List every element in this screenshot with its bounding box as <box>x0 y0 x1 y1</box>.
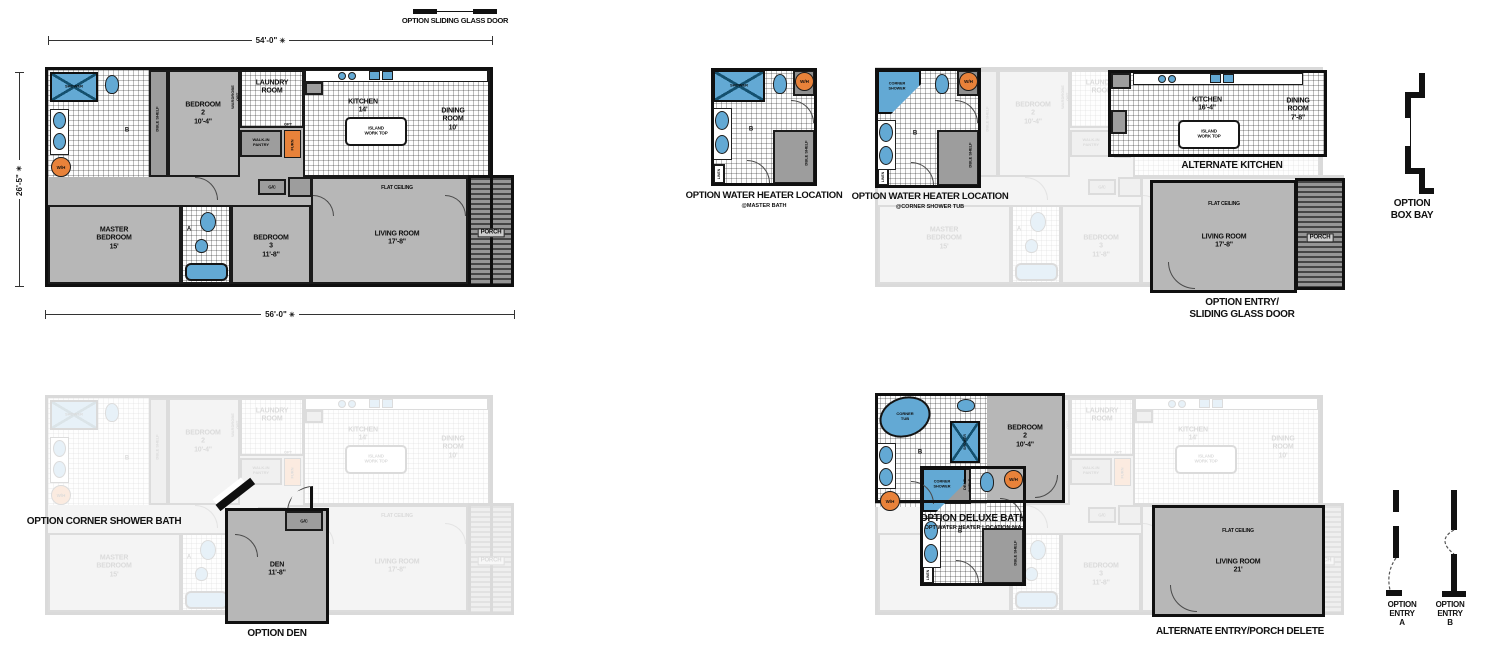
stove-icon <box>382 71 393 80</box>
island-label: ISLAND WORK TOP <box>364 454 387 465</box>
sink-icon <box>879 468 893 486</box>
dble-shelf-label: DBLE SHELF <box>1014 540 1019 565</box>
option-wh-corner-subtitle: @CORNER SHOWER TUB <box>896 204 964 210</box>
porch-label: PORCH <box>478 228 505 237</box>
bathtub-icon <box>185 591 228 609</box>
stove-icon <box>369 399 380 408</box>
hall-closet <box>288 177 312 197</box>
dim-line <box>46 314 261 315</box>
pantry-label: WALK-IN PANTRY <box>1082 466 1099 476</box>
bath-a-toilet-icon <box>195 239 208 253</box>
linen-label: LINEN <box>881 172 885 183</box>
dim-left-value: 26'-5" ✳ <box>15 160 24 200</box>
porch-label: PORCH <box>478 556 505 565</box>
furnace-label: FURN <box>291 467 296 478</box>
alt-dining-label: DINING ROOM 7'-8" <box>1286 97 1309 122</box>
bath-a-label: A <box>187 226 191 233</box>
dim-line <box>289 40 492 41</box>
option-deluxe-bath: CORNER TUB W/H SHOWER B DBLE SHELF BEDRO… <box>875 393 1065 507</box>
sink-icon <box>924 544 938 563</box>
porch-label: PORCH <box>1307 233 1334 242</box>
kitchen-sink-icon <box>1168 75 1176 83</box>
furnace-label: FURN <box>291 139 296 150</box>
wardrobe-opt-label: WARDROBE OPT <box>231 413 241 437</box>
dim-line <box>49 40 252 41</box>
living-label: LIVING ROOM 17'-8" <box>375 231 420 248</box>
option-den-title: OPTION DEN <box>247 628 306 640</box>
bathtub-icon <box>185 263 228 281</box>
stove-icon <box>369 71 380 80</box>
bath-a-toilet-icon <box>1025 567 1038 581</box>
dble-shelf-label: DBLE SHELF <box>986 106 991 131</box>
door-panel <box>413 9 437 14</box>
linen-label: LINEN <box>926 570 930 581</box>
main-floor-plan: PORCH SHOWER <box>45 67 517 290</box>
option-wh-corner-shower: CORNER SHOWER W/H LINEN DBLE SHELF B <box>875 68 981 188</box>
kitchen-sink-icon <box>1158 75 1166 83</box>
gc-label: G/C <box>1098 184 1105 189</box>
kitchen-sink-icon <box>348 72 356 80</box>
option-wh-corner-title: OPTION WATER HEATER LOCATION <box>852 192 1009 203</box>
alternate-kitchen: KITCHEN 16'-4" ISLAND WORK TOP DINING RO… <box>1108 70 1327 157</box>
corner-shower-label: CORNER SHOWER <box>888 81 905 90</box>
flat-ceiling-label: FLAT CEILING <box>381 513 413 519</box>
toilet-icon <box>105 75 119 94</box>
dim-line <box>19 73 20 160</box>
main-plan-wrap: PORCH SHOWER <box>45 67 517 290</box>
corner-shower-label: CORNER SHOWER <box>933 479 950 488</box>
bedroom2-label: BEDROOM 2 10'-4" <box>1015 101 1050 126</box>
kitchen-sink-icon <box>338 72 346 80</box>
wardrobe-opt-label: WARDROBE OPT <box>231 85 241 109</box>
master-label: MASTER BEDROOM 15' <box>96 554 131 579</box>
kitchen-counter <box>1135 398 1318 410</box>
laundry-label: LAUNDRY ROOM <box>1086 408 1119 425</box>
fridge-icon <box>1111 73 1131 89</box>
sliding-glass-door-glyph <box>413 9 497 14</box>
toilet-icon <box>935 74 949 94</box>
water-heater-icon: W/H <box>795 72 814 91</box>
shower-label: SHOWER <box>730 84 748 89</box>
fridge-icon <box>1135 410 1153 423</box>
alt-kitchen-label: KITCHEN 16'-4" <box>1192 97 1222 114</box>
master-label: MASTER BEDROOM 15' <box>96 226 131 251</box>
bedroom3-label: BEDROOM 3 11'-8" <box>253 234 288 259</box>
shower-label: SHOWER <box>963 434 967 450</box>
toilet-icon <box>980 472 994 492</box>
kitchen-counter <box>305 70 488 82</box>
option-sliding-glass-door-caption: OPTION SLIDING GLASS DOOR <box>402 17 508 26</box>
bedroom2-label: BEDROOM 2 10'-4" <box>1007 424 1042 449</box>
island-label: ISLAND WORK TOP <box>1194 454 1217 465</box>
linen-label: LINEN <box>717 169 721 180</box>
sink-icon <box>53 112 66 129</box>
gc-label: G/C <box>300 518 307 523</box>
hall-closet <box>1118 505 1142 525</box>
kitchen-counter <box>305 398 488 410</box>
option-entry-a-title: OPTION ENTRY A <box>1388 600 1417 628</box>
bath-a-sink-icon <box>1030 540 1046 560</box>
sink-icon <box>715 135 729 154</box>
corner-tub-label: CORNER TUB <box>896 412 913 422</box>
furnace-icon: FURN <box>284 130 301 158</box>
door-panel <box>473 9 497 14</box>
option-box-bay-glyph <box>1392 70 1436 196</box>
alternate-entry-title: ALTERNATE ENTRY/PORCH DELETE <box>1156 626 1324 638</box>
fridge-icon <box>305 410 323 423</box>
water-heater-icon: W/H <box>880 491 900 511</box>
dim-star: ✳ <box>280 38 286 45</box>
box-bay-wall-icon <box>1392 70 1436 196</box>
sink-icon <box>879 123 893 142</box>
stove-icon <box>1223 74 1234 83</box>
pantry-label: WALK-IN PANTRY <box>252 466 269 476</box>
bathtub-icon <box>1015 263 1058 281</box>
bath-a-label: A <box>187 554 191 561</box>
hall-closet <box>1118 177 1142 197</box>
dim-bottom-value: 56'-0" ✳ <box>261 310 299 319</box>
furnace-label: FURN <box>1121 467 1126 478</box>
water-heater-icon: W/H <box>959 72 978 91</box>
dim-top-value: 54'-0" ✳ <box>252 36 290 45</box>
kitchen-label: KITCHEN 14' <box>348 99 378 116</box>
sink-icon <box>879 446 893 464</box>
laundry-label: LAUNDRY ROOM <box>256 80 289 97</box>
dim-line <box>19 199 20 286</box>
dim-star: ✳ <box>289 312 295 319</box>
dim-text: 54'-0" <box>256 36 278 45</box>
dble-shelf-label: DBLE SHELF <box>963 474 973 496</box>
bath-a-sink-icon <box>200 540 216 560</box>
kitchen-sink-icon <box>1168 400 1176 408</box>
bedroom3-label: BEDROOM 3 11'-8" <box>1083 234 1118 259</box>
water-heater-icon: W/H <box>51 157 71 177</box>
den-label: DEN 11'-8" <box>268 562 285 579</box>
water-heater-icon: W/H <box>1004 470 1023 489</box>
option-wh-master-subtitle: @MASTER BATH <box>742 203 787 209</box>
option-entry-b-glyph <box>1430 488 1470 600</box>
kitchen-sink-icon <box>348 400 356 408</box>
fridge-icon <box>305 82 323 95</box>
option-deluxe-bath-subtitle: OPT WATER HEATER LOCATION N/A <box>925 525 1022 531</box>
bath-b-label: B <box>125 127 129 134</box>
living-label: LIVING ROOM 21' <box>1216 559 1261 576</box>
flat-ceiling-label: FLAT CEILING <box>1222 528 1254 534</box>
option-corner-shower-bath-title: OPTION CORNER SHOWER BATH <box>27 516 182 528</box>
sink-icon <box>53 133 66 150</box>
master-label: MASTER BEDROOM 15' <box>926 226 961 251</box>
bath-label: B <box>749 126 753 133</box>
flat-ceiling-label: FLAT CEILING <box>381 185 413 191</box>
bath-a-toilet-icon <box>195 567 208 581</box>
option-entry-a-glyph <box>1384 488 1424 600</box>
shower-label: SHOWER <box>65 85 83 90</box>
gc-label: G/C <box>268 184 275 189</box>
floorplan-sheet: PORCH SHOWER <box>0 0 1485 649</box>
option-wh-master-title: OPTION WATER HEATER LOCATION <box>686 191 843 202</box>
opt-label: OPT <box>1114 451 1122 456</box>
dble-shelf-label: DBLE SHELF <box>969 142 974 167</box>
pantry-label: WALK-IN PANTRY <box>252 138 269 148</box>
furnace-icon: FURN <box>1114 458 1131 486</box>
bath-a-label: A <box>1017 226 1021 233</box>
sink-icon <box>879 146 893 165</box>
gc-label: G/C <box>1098 512 1105 517</box>
option-entry-sgd-title: OPTION ENTRY/ SLIDING GLASS DOOR <box>1189 297 1294 320</box>
kitchen-label: KITCHEN 14' <box>1178 427 1208 444</box>
toilet-icon <box>957 399 975 412</box>
dble-shelf-label: DBLE SHELF <box>156 106 161 131</box>
dim-left: 26'-5" ✳ <box>15 72 24 287</box>
option-box-bay-title: OPTION BOX BAY <box>1391 198 1434 221</box>
island-label: ISLAND WORK TOP <box>1197 129 1220 140</box>
pantry-label: WALK-IN PANTRY <box>1082 138 1099 148</box>
option-corner-shower-bath: CORNER SHOWER W/H LINEN DBLE SHELF B <box>45 398 151 518</box>
flat-ceiling-label: FLAT CEILING <box>1208 201 1240 207</box>
dining-label: DINING ROOM 10' <box>441 107 464 132</box>
kitchen-sink-icon <box>338 400 346 408</box>
option-entry-sgd: PORCH FLAT CEILING LIVING ROOM 17'-8" <box>1150 180 1350 293</box>
stove-icon <box>1212 399 1223 408</box>
stove-icon <box>1199 399 1210 408</box>
living-label: LIVING ROOM 17'-8" <box>1202 234 1247 251</box>
bedroom3-label: BEDROOM 3 11'-8" <box>1083 562 1118 587</box>
bath-label: B <box>918 449 922 456</box>
alternate-kitchen-title: ALTERNATE KITCHEN <box>1181 160 1282 172</box>
island-label: ISLAND WORK TOP <box>364 126 387 137</box>
sink-icon <box>715 111 729 130</box>
option-deluxe-bath-title: OPTION DELUXE BATH <box>920 513 1026 525</box>
laundry-label: LAUNDRY ROOM <box>256 408 289 425</box>
stove-icon <box>382 399 393 408</box>
dble-shelf-label: DBLE SHELF <box>156 434 161 459</box>
bathtub-icon <box>1015 591 1058 609</box>
dim-line <box>299 314 514 315</box>
dim-tick <box>492 36 493 45</box>
option-wh-master-bath: SHOWER W/H LINEN DBLE SHELF B <box>711 68 817 186</box>
entry-b-wall-icon <box>1430 488 1470 600</box>
toilet-icon <box>773 74 787 94</box>
living-label: LIVING ROOM 17'-8" <box>375 559 420 576</box>
cabinet-box <box>1111 110 1127 134</box>
dim-text: 26'-5" <box>15 174 24 196</box>
dim-star: ✳ <box>16 164 23 172</box>
bedroom2-label: BEDROOM 2 10'-4" <box>185 101 220 126</box>
bath-a-toilet-icon <box>1025 239 1038 253</box>
option-entry-b-title: OPTION ENTRY B <box>1436 600 1465 628</box>
opt-label: OPT <box>284 123 292 128</box>
bath-label: B <box>913 130 917 137</box>
dim-tick <box>514 310 515 319</box>
dim-text: 56'-0" <box>265 310 287 319</box>
stove-icon <box>1210 74 1221 83</box>
dim-bottom: 56'-0" ✳ <box>45 310 515 319</box>
option-den: G/C DEN 11'-8" <box>225 508 329 624</box>
dim-top: 54'-0" ✳ <box>48 36 493 45</box>
door-rail <box>437 11 473 13</box>
entry-a-wall-icon <box>1384 488 1424 600</box>
kitchen-sink-icon <box>1178 400 1186 408</box>
bath-a-sink-icon <box>200 212 216 232</box>
dining-label: DINING ROOM 10' <box>441 435 464 460</box>
dim-tick <box>15 286 24 287</box>
dble-shelf-label: DBLE SHELF <box>805 140 810 165</box>
alternate-entry-porch-delete: FLAT CEILING LIVING ROOM 21' <box>1152 505 1325 617</box>
opt-label: OPT <box>284 451 292 456</box>
dining-label: DINING ROOM 10' <box>1271 435 1294 460</box>
wardrobe-opt-label: WARDROBE OPT <box>1061 85 1071 109</box>
box-bay-window <box>1405 118 1410 146</box>
bath-a-sink-icon <box>1030 212 1046 232</box>
bedroom2-label: BEDROOM 2 10'-4" <box>185 429 220 454</box>
furnace-icon: FURN <box>284 458 301 486</box>
kitchen-label: KITCHEN 14' <box>348 427 378 444</box>
